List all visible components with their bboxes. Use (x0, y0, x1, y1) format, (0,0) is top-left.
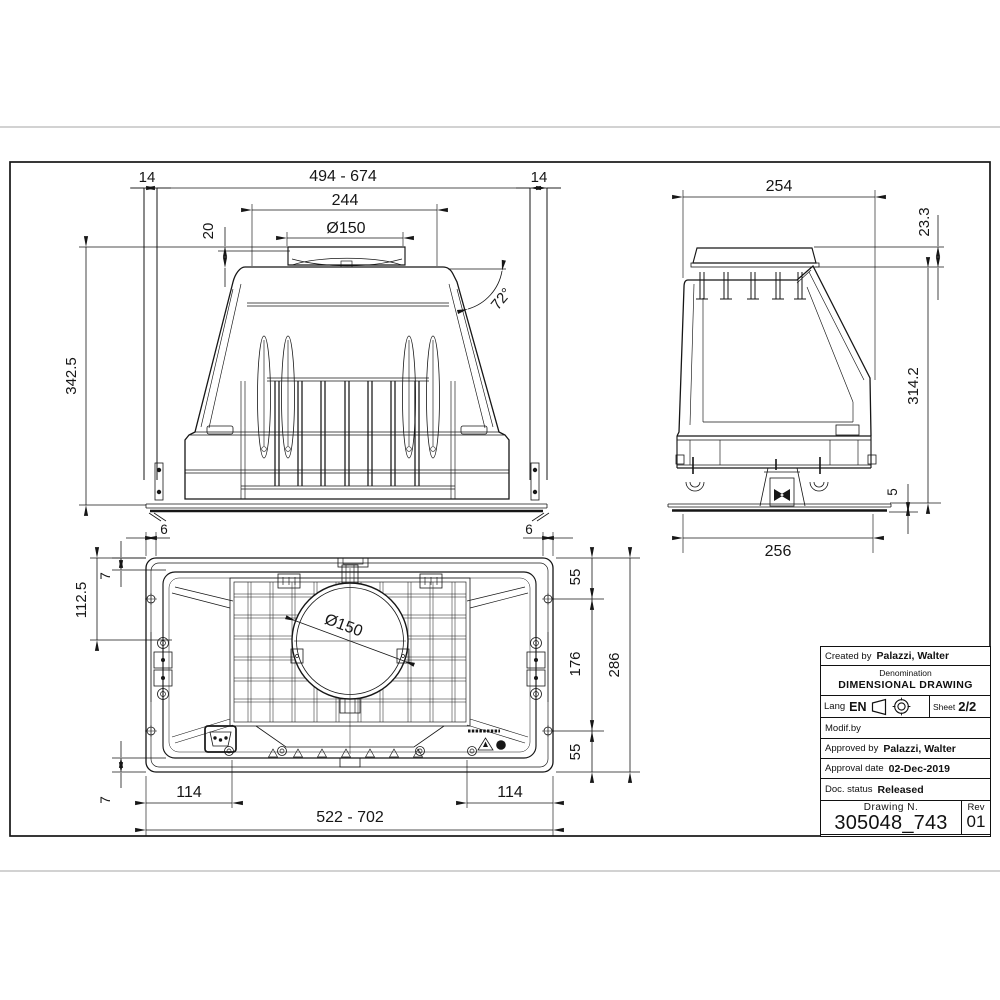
recycle-triangle-icon (478, 738, 493, 750)
projection-target-icon (892, 697, 911, 716)
doc-status-label: Doc. status (825, 784, 873, 795)
dim-front-top-plate-width: 244 (332, 192, 359, 209)
side-step-detail (836, 425, 859, 435)
dim-plan-overall-depth: 286 (606, 652, 623, 677)
dim-front-duct-diameter: Ø150 (326, 220, 365, 237)
sheet-label: Sheet (933, 702, 955, 712)
side-flange (668, 504, 891, 511)
title-row-approved-by: Approved by Palazzi, Walter (821, 739, 990, 759)
lang-value: EN (849, 700, 866, 714)
denomination-label: Denomination (821, 668, 990, 678)
projection-frustum-icon (871, 698, 888, 716)
side-duct-collar (691, 248, 819, 267)
dim-plan-duct-center-offset: 112.5 (73, 582, 90, 618)
title-row-modif-by: Modif.by (821, 718, 990, 739)
side-base-brackets (676, 455, 876, 506)
rev-value: 01 (962, 813, 990, 831)
dim-plan-seg-top: 55 (567, 569, 584, 586)
lang-cell: Lang EN (821, 696, 930, 717)
dim-plan-edge-left: 6 (160, 522, 168, 537)
approval-date-label: Approval date (825, 763, 884, 774)
drawing-sheet: 14 494 - 674 14 244 Ø150 20 342.5 72° (0, 0, 1000, 1000)
drawing-number-value: 305048_743 (821, 813, 961, 834)
modif-by-label: Modif.by (825, 723, 861, 734)
title-row-lang-sheet: Lang EN Sheet 2/2 (821, 696, 990, 718)
title-block: Created by Palazzi, Walter Denomination … (820, 646, 991, 837)
dot-mark-icon (496, 740, 506, 750)
side-top-ribs (696, 272, 806, 299)
dim-plan-bracket-span: 176 (567, 651, 584, 676)
title-row-drawing-number: Drawing N. 305048_743 Rev 01 (821, 801, 990, 835)
dim-side-body-height: 314.2 (905, 367, 922, 405)
created-by-label: Created by (825, 651, 871, 662)
dim-plan-corner-right: 114 (497, 784, 523, 801)
dim-side-flange-thickness: 5 (885, 488, 900, 496)
lang-label: Lang (824, 701, 845, 712)
rev-cell: Rev 01 (962, 801, 990, 834)
front-left-clip (207, 426, 233, 434)
side-view: 254 23.3 314.2 5 256 (668, 178, 944, 560)
doc-status-value: Released (878, 784, 924, 796)
title-row-approval-date: Approval date 02-Dec-2019 (821, 759, 990, 779)
denomination-value: DIMENSIONAL DRAWING (821, 679, 990, 691)
front-duct-collar (288, 247, 405, 267)
dim-front-opening-width: 494 - 674 (309, 168, 377, 185)
front-view: 14 494 - 674 14 244 Ø150 20 342.5 72° (63, 168, 561, 521)
dim-plan-rim-bottom: 7 (98, 796, 113, 804)
front-right-clip (461, 426, 487, 434)
dim-side-base-depth: 256 (765, 543, 792, 560)
dim-front-overall-height: 342.5 (63, 357, 80, 395)
approved-by-label: Approved by (825, 743, 878, 754)
drawing-number-cell: Drawing N. 305048_743 (821, 801, 962, 834)
created-by-value: Palazzi, Walter (876, 650, 949, 662)
dim-front-side-angle: 72° (488, 285, 516, 313)
dim-front-collar-height: 20 (200, 223, 217, 240)
front-flange (146, 504, 547, 511)
dim-side-top-depth: 254 (766, 178, 793, 195)
sheet-value: 2/2 (958, 699, 976, 714)
dim-plan-edge-right: 6 (525, 522, 533, 537)
dim-plan-corner-left: 114 (176, 784, 202, 801)
title-row-created-by: Created by Palazzi, Walter (821, 647, 990, 666)
dim-side-collar-height: 23.3 (916, 207, 933, 236)
dim-front-clearance-right: 14 (531, 169, 548, 186)
approval-date-value: 02-Dec-2019 (889, 763, 950, 775)
dim-plan-width-range: 522 - 702 (316, 809, 384, 826)
plan-bottom-details (225, 747, 477, 768)
sheet-cell: Sheet 2/2 (930, 696, 990, 717)
drawing-canvas: 14 494 - 674 14 244 Ø150 20 342.5 72° (0, 0, 1000, 1000)
title-row-denomination: Denomination DIMENSIONAL DRAWING (821, 666, 990, 696)
plan-view: Ø150 (73, 522, 640, 836)
power-socket (205, 726, 236, 752)
title-row-doc-status: Doc. status Released (821, 779, 990, 801)
dim-front-clearance-left: 14 (139, 169, 156, 186)
approved-by-value: Palazzi, Walter (883, 743, 956, 755)
dim-plan-rim-top: 7 (98, 572, 113, 580)
dim-plan-seg-bottom: 55 (567, 744, 584, 761)
